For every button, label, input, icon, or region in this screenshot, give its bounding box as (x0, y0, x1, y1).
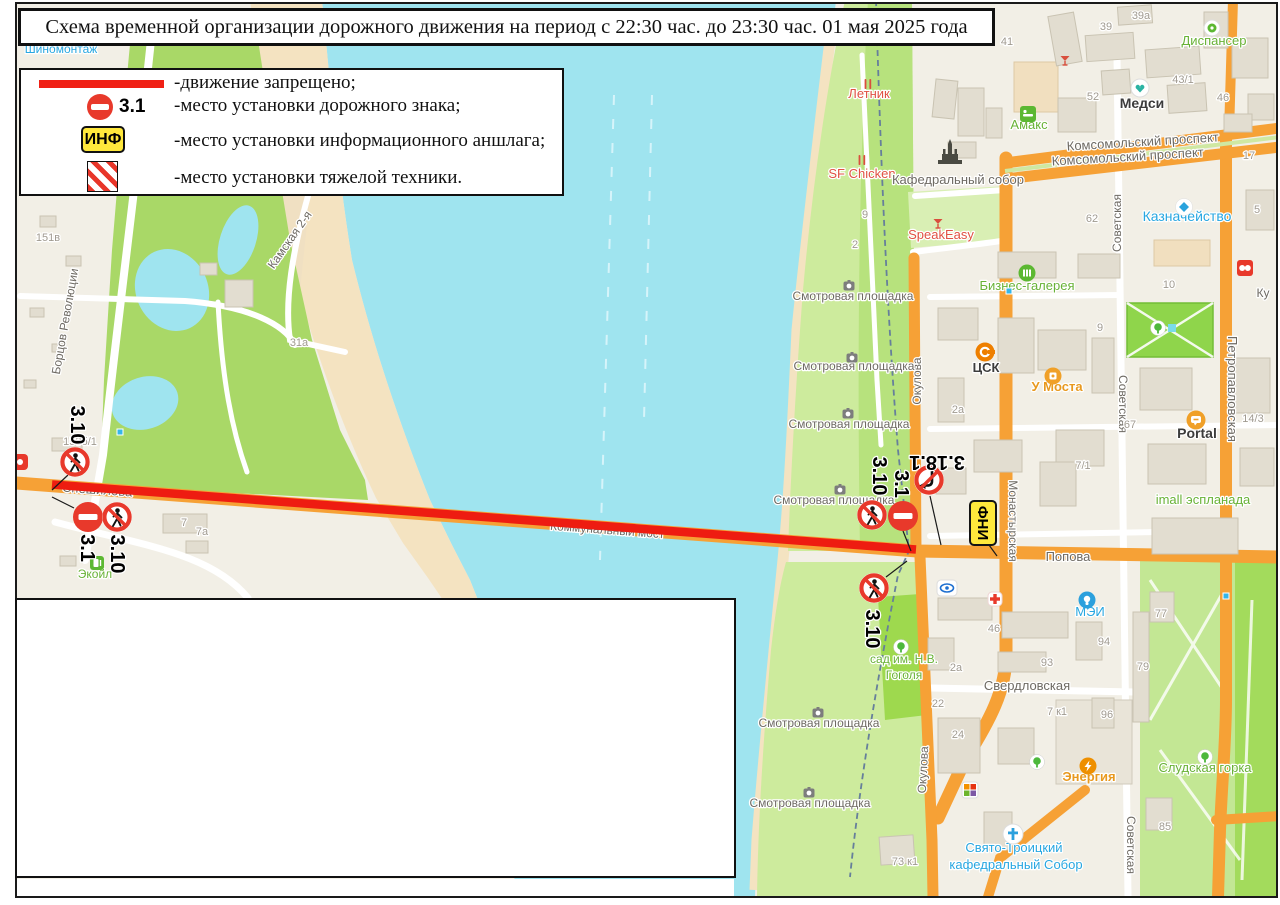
building (1148, 444, 1206, 484)
medsi-icon (1131, 79, 1149, 97)
building-number: 151в (36, 232, 60, 244)
building-number: 17 (1243, 150, 1255, 162)
road-sign-number: 3.10 (106, 535, 128, 574)
building (24, 380, 36, 388)
building-number: 14/3 (1242, 413, 1263, 425)
camera-icon (835, 484, 846, 495)
building (998, 652, 1046, 672)
building (225, 280, 253, 307)
empty-notes-box (15, 598, 736, 878)
kazna-icon (1176, 199, 1193, 216)
bluedot-icon (1006, 288, 1012, 294)
street-label: Попова (1046, 549, 1092, 564)
building-number: 96 (1101, 709, 1113, 721)
dispanser-icon (1204, 20, 1220, 36)
mei-icon (1079, 592, 1096, 609)
legend-item-label: -место установки тяжелой техники. (174, 167, 462, 189)
road-sign-number: 3.1 (76, 534, 98, 562)
building-number: 22 (932, 698, 944, 710)
building-number: 2 (852, 239, 858, 251)
building-number: 77 (1155, 608, 1167, 620)
bluedot-icon (1223, 593, 1229, 599)
building-number: 7 к1 (1047, 706, 1067, 718)
building (60, 556, 76, 566)
building (1014, 62, 1058, 112)
building (66, 256, 81, 266)
building (1078, 254, 1120, 278)
camera-icon (843, 408, 854, 419)
building-number: 7 (181, 517, 187, 529)
building-number: 43/1 (1172, 74, 1193, 86)
bldgGreen-icon (1019, 265, 1036, 282)
scheme-title-box: Схема временной организации дорожного дв… (18, 8, 995, 46)
road-sign-3.10 (60, 447, 90, 477)
building-number: 46 (988, 623, 1000, 635)
tree-icon (1198, 750, 1213, 765)
redblob-icon (12, 454, 28, 470)
building (938, 718, 980, 773)
street-label: Монастырская (1006, 480, 1020, 562)
building-number: 7/1 (1075, 460, 1090, 472)
road-sign-number: 3.10 (868, 457, 890, 496)
legend: -движение запрещено; 3.1 -место установк… (19, 68, 564, 196)
energy-icon (1080, 758, 1097, 775)
poi-label: кафедральный Собор (949, 857, 1082, 872)
road-sign-3.10 (859, 573, 889, 603)
info-board-marker: ИНФ (970, 501, 996, 545)
building-number: 39 (1100, 21, 1112, 33)
street-label: Ку (1257, 286, 1270, 300)
building (1152, 518, 1238, 554)
building-number: 39а (1132, 10, 1151, 22)
building (974, 440, 1022, 472)
building-number: 94 (1098, 636, 1110, 648)
portal-icon (1187, 411, 1206, 430)
camera-icon (813, 707, 824, 718)
road-sign-3.10 (857, 500, 887, 530)
building-number: 85 (1159, 821, 1171, 833)
building (998, 728, 1034, 764)
camera-icon (844, 280, 855, 291)
tree-icon (1030, 755, 1045, 770)
building (40, 216, 56, 227)
poi-label: Гоголя (886, 668, 922, 682)
camera-icon (847, 352, 858, 363)
road-sign-number: 3.1 (890, 470, 912, 498)
road-sign-3.1 (73, 502, 103, 532)
legend-sign-number: 3.1 (119, 96, 145, 118)
building (1038, 330, 1086, 370)
church-icon (1003, 824, 1023, 844)
legend-item-label: -место установки дорожного знака; (174, 95, 461, 117)
building-number: 73 к1 (892, 856, 918, 868)
building (1002, 612, 1068, 638)
building (186, 541, 208, 553)
building-number: 7а (196, 526, 209, 538)
poi-label: Смотровая площадка (789, 417, 910, 431)
building-number: 24 (952, 729, 964, 741)
street-label: Свердловская (984, 678, 1070, 693)
building-number: 5 (1254, 204, 1260, 216)
building-number: 41 (1001, 36, 1013, 48)
no-entry-sign-icon (87, 94, 113, 120)
city-square-park (1127, 303, 1213, 357)
building (1167, 83, 1207, 114)
building-number: 46 (1217, 92, 1229, 104)
building (1040, 462, 1076, 506)
building (938, 308, 978, 340)
building-number: 2а (952, 404, 965, 416)
heavy-equipment-icon (87, 161, 118, 192)
building (1154, 240, 1210, 266)
road-sign-3.10 (102, 502, 132, 532)
building (1092, 338, 1114, 393)
building-number: 9 (862, 209, 868, 221)
bluedot-icon (117, 429, 123, 435)
tree-icon (894, 640, 909, 655)
poi-label: ЦСК (973, 360, 1000, 375)
building (200, 263, 217, 275)
white-strip (17, 879, 734, 896)
street-label: Советская (1124, 816, 1138, 874)
road-sign-number: 3.10 (66, 406, 88, 445)
legend-item-label: -движение запрещено; (174, 72, 356, 94)
poi-label: Кафедральный собор (892, 172, 1024, 187)
building (30, 308, 44, 317)
building-number: 9 (1097, 322, 1103, 334)
building-number: 93 (1041, 657, 1053, 669)
building (1224, 114, 1252, 132)
squares4-icon (962, 782, 978, 798)
legend-item-label: -место установки информационного аншлага… (174, 130, 545, 152)
street-label: Советская (1110, 194, 1124, 252)
poi-label: Смотровая площадка (793, 289, 914, 303)
road-sign-number: 3.18.1 (909, 451, 965, 473)
building (1240, 448, 1274, 486)
tree-icon (1151, 321, 1166, 336)
poi-label: SpeakEasy (908, 227, 974, 242)
poi-label: imall эспланада (1156, 492, 1251, 507)
poi-label: SF Chicken (828, 166, 895, 181)
building (958, 88, 984, 136)
building (998, 318, 1034, 373)
building (1058, 98, 1096, 132)
info-board-icon: ИНФ (81, 126, 125, 153)
umosta-icon (1045, 368, 1062, 385)
scheme-title: Схема временной организации дорожного дв… (45, 16, 967, 39)
bed-icon (1020, 106, 1036, 122)
building-number: 31а (290, 337, 309, 349)
building (932, 79, 958, 119)
poi-label: Медси (1120, 95, 1165, 111)
poi-label: Смотровая площадка (759, 716, 880, 730)
poi-label: Смотровая площадка (750, 796, 871, 810)
building-number: 62 (1086, 213, 1098, 225)
info-board-text: ИНФ (975, 506, 992, 541)
building-number: 79 (1137, 661, 1149, 673)
building (1101, 69, 1131, 95)
eye-icon (937, 580, 957, 596)
road-sign-3.1 (888, 501, 918, 531)
street-label: Окулова (915, 746, 931, 794)
building-number: 2а (950, 662, 963, 674)
poi-label: Летник (848, 86, 890, 101)
road-sign-number: 3.10 (861, 610, 883, 649)
building-number: 67 (1124, 419, 1136, 431)
theater-icon (1237, 260, 1253, 276)
building (986, 108, 1002, 138)
camera-icon (804, 787, 815, 798)
traffic-scheme-page: { "title": {"text": "Схема временной орг… (0, 0, 1280, 905)
building (1085, 32, 1135, 61)
legend-red-line-symbol (39, 80, 164, 88)
building (1140, 368, 1192, 410)
building (938, 598, 992, 620)
building-number: 52 (1087, 91, 1099, 103)
medcross-icon (988, 592, 1002, 606)
building-number: 10 (1163, 279, 1175, 291)
street-label: Петропавловская (1225, 336, 1240, 442)
